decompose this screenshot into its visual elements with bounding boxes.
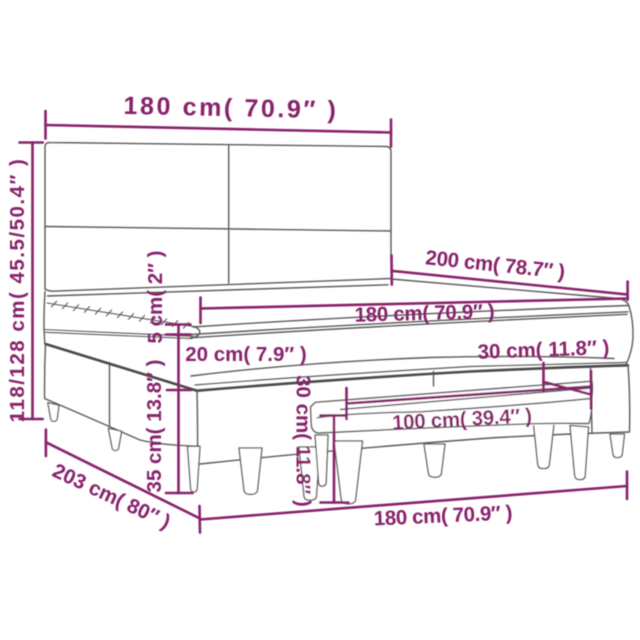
svg-text:180 cm( 70.9″ ): 180 cm( 70.9″ ) xyxy=(354,300,494,327)
svg-text:30 cm( 11.8″ ): 30 cm( 11.8″ ) xyxy=(292,375,315,507)
svg-text:35 cm( 13.8″ ): 35 cm( 13.8″ ) xyxy=(143,360,166,493)
svg-text:20 cm( 7.9″ ): 20 cm( 7.9″ ) xyxy=(185,343,307,366)
svg-text:5 cm( 2″ ): 5 cm( 2″ ) xyxy=(144,251,167,344)
svg-text:30 cm( 11.8″ ): 30 cm( 11.8″ ) xyxy=(477,336,609,364)
svg-text:180 cm( 70.9″ ): 180 cm( 70.9″ ) xyxy=(123,92,339,124)
svg-text:118/128 cm( 45.5/50.4″ ): 118/128 cm( 45.5/50.4″ ) xyxy=(6,158,29,423)
